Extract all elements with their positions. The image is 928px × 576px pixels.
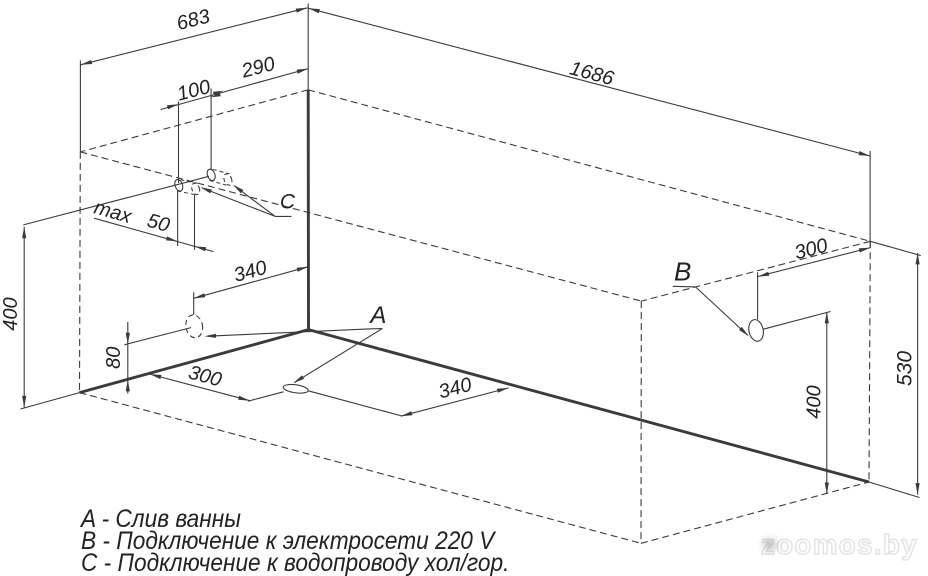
svg-text:A: A [368, 302, 386, 329]
svg-text:1686: 1686 [567, 57, 616, 90]
svg-text:100: 100 [175, 76, 213, 106]
svg-text:683: 683 [174, 5, 212, 35]
svg-text:300: 300 [186, 362, 224, 392]
svg-text:80: 80 [103, 347, 125, 369]
svg-text:340: 340 [231, 257, 269, 287]
svg-text:530: 530 [894, 351, 917, 386]
svg-text:B: B [674, 257, 691, 287]
svg-text:50: 50 [145, 210, 172, 237]
svg-text:max: max [92, 197, 135, 229]
svg-text:C: C [280, 191, 296, 214]
svg-text:400: 400 [804, 385, 826, 418]
svg-text:400: 400 [0, 297, 22, 330]
